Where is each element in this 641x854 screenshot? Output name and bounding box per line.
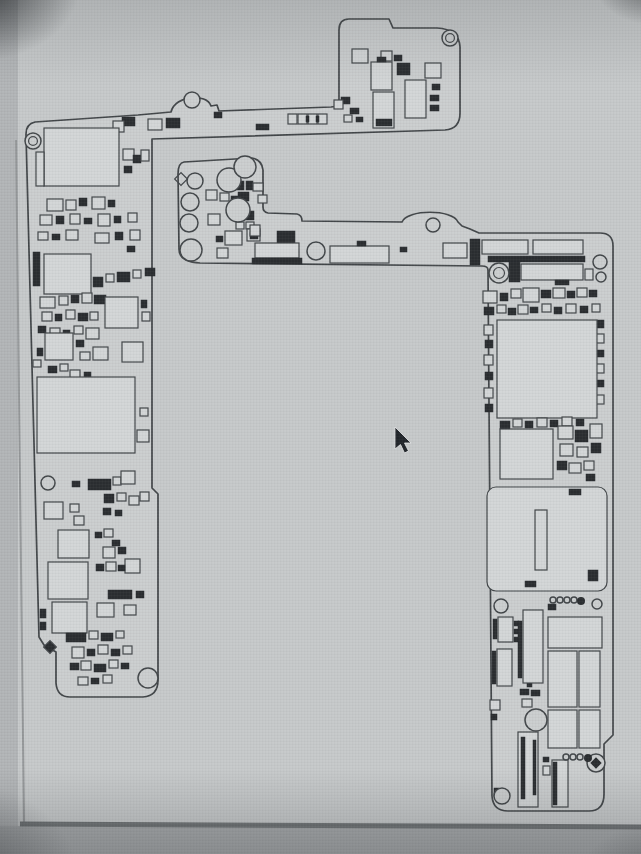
component-light [255, 243, 299, 258]
component-dark [94, 664, 106, 672]
component-light [129, 496, 139, 505]
component-light [44, 128, 119, 186]
component-dark [521, 737, 525, 799]
component-dark [66, 633, 86, 642]
hole-dot [584, 754, 592, 762]
component-light [93, 347, 108, 360]
component-light [98, 645, 108, 654]
component-light [584, 461, 594, 470]
component-light [344, 115, 352, 122]
component-dark [597, 380, 604, 387]
screw-hole [494, 788, 510, 804]
component-dark [430, 105, 439, 111]
component-dark [470, 239, 480, 265]
component-light [59, 296, 68, 305]
component-light [405, 80, 426, 118]
component-light [60, 364, 68, 371]
component-dark [589, 290, 597, 297]
component-light [97, 603, 114, 617]
component-light [500, 429, 553, 479]
component-dark [525, 581, 536, 587]
component-dark [127, 246, 135, 252]
component-light [137, 430, 149, 442]
screw-hole [577, 754, 583, 760]
component-dark [569, 489, 581, 495]
component-light [490, 700, 500, 710]
below-page-area [0, 826, 641, 854]
component-dark [118, 547, 126, 554]
screw-hole [563, 754, 569, 760]
component-dark [33, 252, 40, 286]
component-light [142, 312, 150, 321]
component-light [141, 150, 149, 161]
component-light [560, 444, 573, 456]
component-dark [252, 258, 302, 264]
component-dark [93, 277, 103, 287]
component-light [318, 114, 327, 124]
component-light [562, 417, 572, 426]
component-light [106, 274, 114, 282]
component-dark [103, 508, 111, 515]
component-light [66, 230, 78, 240]
component-dark [48, 366, 57, 373]
component-dark [145, 268, 155, 276]
component-dark [485, 340, 493, 348]
component-light [82, 293, 92, 303]
component-dark [256, 124, 269, 130]
component-light [125, 559, 140, 573]
component-dark [580, 306, 588, 313]
component-light [553, 288, 565, 298]
component-dark [553, 762, 557, 805]
screw-hole [442, 30, 458, 46]
component-light [72, 647, 84, 658]
component-dark [96, 564, 104, 571]
component-light [523, 288, 539, 302]
component-light [585, 269, 593, 280]
screw-hole [41, 476, 55, 490]
component-dark [555, 280, 569, 285]
screw-hole [226, 198, 250, 222]
component-dark [485, 372, 493, 380]
component-dark [518, 621, 522, 678]
component-light [45, 333, 73, 360]
component-dark [586, 474, 595, 481]
component-dark [377, 57, 386, 62]
component-light [38, 232, 48, 240]
component-light [352, 49, 368, 63]
component-light [117, 493, 126, 501]
component-light [123, 149, 134, 160]
component-light [44, 502, 63, 519]
component-light [577, 288, 587, 297]
component-light [80, 352, 90, 360]
component-dark [597, 350, 604, 357]
component-light [103, 547, 115, 558]
component-dark [306, 116, 309, 122]
component-dark [530, 307, 538, 313]
component-light [523, 610, 543, 683]
component-dark [72, 481, 80, 487]
screw-hole [557, 597, 563, 603]
component-dark [141, 300, 147, 308]
component-light [90, 312, 98, 320]
component-light [40, 297, 55, 308]
component-dark [108, 590, 132, 599]
component-light [47, 199, 63, 211]
component-dark [95, 532, 102, 538]
component-dark [166, 118, 180, 128]
component-dark [543, 757, 549, 762]
component-light [518, 305, 528, 314]
component-light [98, 214, 110, 226]
component-light [220, 193, 229, 201]
screw-hole [180, 214, 198, 232]
component-light [42, 312, 52, 321]
component-light [497, 649, 512, 686]
component-light [37, 377, 135, 453]
component-dark [397, 63, 410, 75]
component-dark [115, 232, 123, 240]
component-dark [70, 663, 79, 670]
component-light [225, 231, 242, 245]
component-dark [115, 510, 122, 516]
component-light [217, 248, 228, 258]
component-light [103, 675, 112, 683]
component-dark [38, 326, 46, 333]
component-light [122, 342, 143, 362]
component-dark [114, 216, 121, 223]
component-dark [214, 112, 222, 118]
component-dark [491, 714, 497, 720]
component-light [334, 100, 343, 109]
component-dark [117, 272, 130, 282]
component-dark [71, 295, 79, 303]
component-dark [91, 678, 99, 684]
component-dark [52, 234, 60, 240]
component-dark [575, 430, 588, 442]
component-light [81, 661, 91, 670]
component-light [425, 63, 441, 78]
screw-hole [426, 218, 440, 232]
component-light [579, 651, 600, 707]
component-dark [488, 256, 585, 262]
screen-photo [0, 0, 641, 854]
component-light [535, 510, 547, 570]
screw-hole [489, 263, 509, 283]
component-dark [567, 291, 575, 298]
component-dark [485, 404, 493, 412]
component-light [113, 477, 121, 485]
component-light [484, 388, 493, 398]
component-light [128, 213, 137, 222]
component-dark [508, 308, 516, 315]
component-light [497, 305, 506, 313]
component-dark [533, 740, 536, 795]
component-light [66, 310, 75, 319]
component-dark [376, 119, 392, 126]
component-light [40, 215, 52, 225]
component-dark [118, 565, 125, 571]
component-light [497, 320, 597, 418]
component-light [522, 699, 532, 707]
screw-hole [184, 92, 200, 108]
component-dark [94, 295, 106, 304]
component-dark [112, 540, 120, 546]
component-dark [531, 690, 540, 696]
component-dark [493, 619, 497, 639]
component-light [206, 190, 217, 200]
screw-hole [592, 599, 602, 609]
component-light [70, 214, 80, 224]
component-light [66, 200, 76, 210]
component-light [105, 297, 138, 328]
component-dark [588, 570, 598, 581]
pcb-layout-diagram [0, 0, 641, 854]
component-light [513, 419, 522, 427]
component-light [577, 447, 588, 457]
component-light [121, 471, 135, 484]
screw-hole [494, 599, 508, 613]
screw-hole [307, 242, 325, 260]
component-light [330, 246, 389, 263]
component-dark [597, 320, 604, 328]
component-light [123, 646, 132, 654]
component-dark [356, 117, 363, 122]
component-dark [111, 649, 120, 656]
component-light [371, 62, 392, 90]
component-light [484, 325, 493, 335]
component-light [208, 214, 220, 225]
component-dark [430, 95, 439, 101]
component-light [124, 605, 136, 615]
component-light [533, 240, 583, 254]
component-dark [121, 663, 129, 669]
component-dark [541, 290, 551, 298]
screw-hole [180, 239, 202, 261]
component-dark [394, 55, 402, 61]
component-dark [87, 649, 95, 656]
screw-hole [25, 133, 41, 149]
component-dark [78, 313, 88, 321]
component-dark [484, 307, 494, 315]
component-light [592, 304, 600, 312]
component-dark [500, 421, 510, 429]
component-light [33, 360, 41, 367]
screw-hole [596, 272, 606, 282]
component-dark [591, 443, 601, 453]
screw-hole [564, 597, 570, 603]
component-dark [432, 84, 440, 90]
component-light [78, 677, 88, 685]
component-dark [557, 461, 567, 470]
component-light [548, 710, 577, 748]
component-light [133, 270, 141, 278]
component-dark [216, 236, 223, 242]
component-light [308, 114, 317, 124]
screw-hole [234, 156, 256, 178]
component-light [104, 529, 113, 537]
component-light [109, 660, 118, 668]
component-dark [548, 604, 556, 610]
component-light [482, 240, 528, 254]
component-dark [492, 651, 496, 684]
component-light [70, 504, 79, 512]
component-dark [40, 622, 46, 630]
component-dark [350, 108, 359, 114]
component-dark [79, 198, 87, 206]
component-dark [104, 494, 114, 503]
component-light [250, 225, 260, 236]
component-light [542, 304, 551, 312]
page-bottom-edge-line [20, 824, 641, 827]
hole-dot [577, 597, 585, 605]
component-light [116, 631, 124, 638]
component-light [95, 233, 109, 243]
screw-hole [187, 173, 203, 189]
component-dark [40, 609, 46, 618]
component-light [236, 222, 244, 229]
component-light [590, 424, 602, 438]
component-dark [124, 166, 132, 173]
component-light [140, 492, 149, 501]
component-dark [88, 479, 111, 490]
component-light [253, 183, 263, 191]
component-dark [316, 116, 319, 122]
screw-hole [593, 255, 607, 269]
component-light [484, 355, 493, 365]
component-light [58, 530, 89, 558]
screw-hole [138, 668, 158, 688]
screw-hole [181, 193, 199, 211]
component-light [569, 463, 581, 473]
component-dark [84, 218, 92, 224]
component-light [498, 617, 513, 642]
component-light [443, 243, 467, 258]
component-dark [520, 689, 529, 695]
component-dark [108, 200, 115, 207]
component-light [288, 114, 297, 124]
component-light [579, 710, 600, 748]
component-dark [550, 420, 558, 427]
screw-hole [550, 597, 556, 603]
component-dark [246, 181, 253, 190]
component-light [548, 651, 577, 707]
component-dark [400, 247, 407, 252]
component-light [106, 562, 116, 571]
component-light [148, 119, 162, 130]
component-light [89, 631, 98, 639]
component-light [130, 230, 140, 240]
component-light [537, 418, 547, 427]
component-dark [554, 307, 562, 314]
component-light [86, 328, 99, 339]
component-light [258, 195, 267, 203]
component-dark [525, 421, 533, 428]
component-light [298, 114, 307, 124]
component-dark [37, 348, 43, 356]
screw-hole [525, 709, 547, 731]
component-light [140, 408, 148, 416]
component-light [44, 254, 91, 294]
component-dark [56, 216, 64, 224]
component-light [548, 617, 602, 648]
screw-hole [571, 597, 577, 603]
component-dark [576, 419, 584, 426]
component-light [521, 264, 583, 280]
component-light [92, 197, 105, 209]
component-light [511, 289, 521, 298]
component-light [74, 326, 83, 334]
component-light [36, 152, 44, 186]
component-dark [55, 314, 62, 321]
component-dark [509, 262, 520, 282]
component-light [52, 602, 87, 633]
component-light [48, 562, 88, 599]
component-dark [136, 591, 144, 598]
component-dark [76, 340, 84, 347]
component-light [543, 766, 550, 775]
component-dark [101, 633, 113, 641]
component-light [558, 426, 573, 439]
component-light [74, 516, 84, 525]
component-light [566, 304, 576, 313]
component-dark [500, 293, 508, 301]
component-light [483, 291, 497, 303]
component-dark [133, 155, 141, 163]
screw-hole [570, 754, 576, 760]
component-dark [357, 241, 366, 246]
